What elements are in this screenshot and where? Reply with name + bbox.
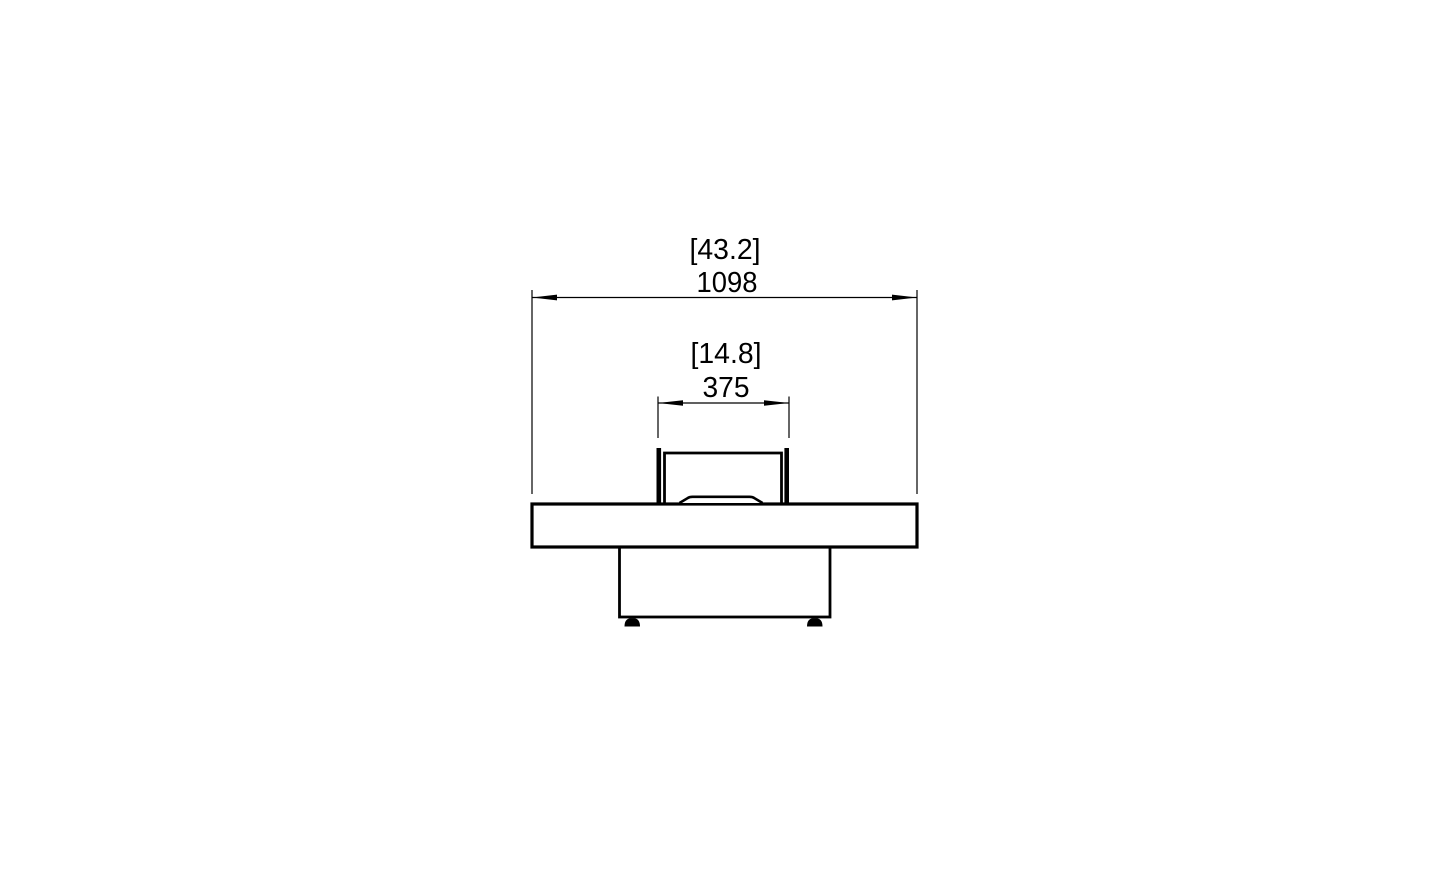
overall-arrowhead-left [532,295,557,301]
burner-arrowhead-left [658,400,683,406]
burner-tray [680,497,763,503]
tabletop [532,504,917,547]
overall-width-imperial-label: [43.2] [690,234,761,266]
glass-screen-left [657,448,662,505]
glass-screen-right [784,448,789,505]
overall-width-metric-label: 1098 [697,267,758,299]
burner-width-imperial-label: [14.8] [691,338,762,370]
burner-width-dimension: [14.8] 375 [658,338,789,438]
right-foot [807,618,823,626]
left-foot [625,618,641,626]
drawing-canvas: [43.2] 1098 [14.8] 375 [0,0,1445,893]
base-cabinet [620,547,831,617]
burner-width-metric-label: 375 [703,372,750,404]
fire-table-elevation [532,448,917,627]
overall-arrowhead-right [892,295,917,301]
burner-arrowhead-right [764,400,789,406]
fire-table-technical-drawing: [43.2] 1098 [14.8] 375 [0,0,1445,893]
